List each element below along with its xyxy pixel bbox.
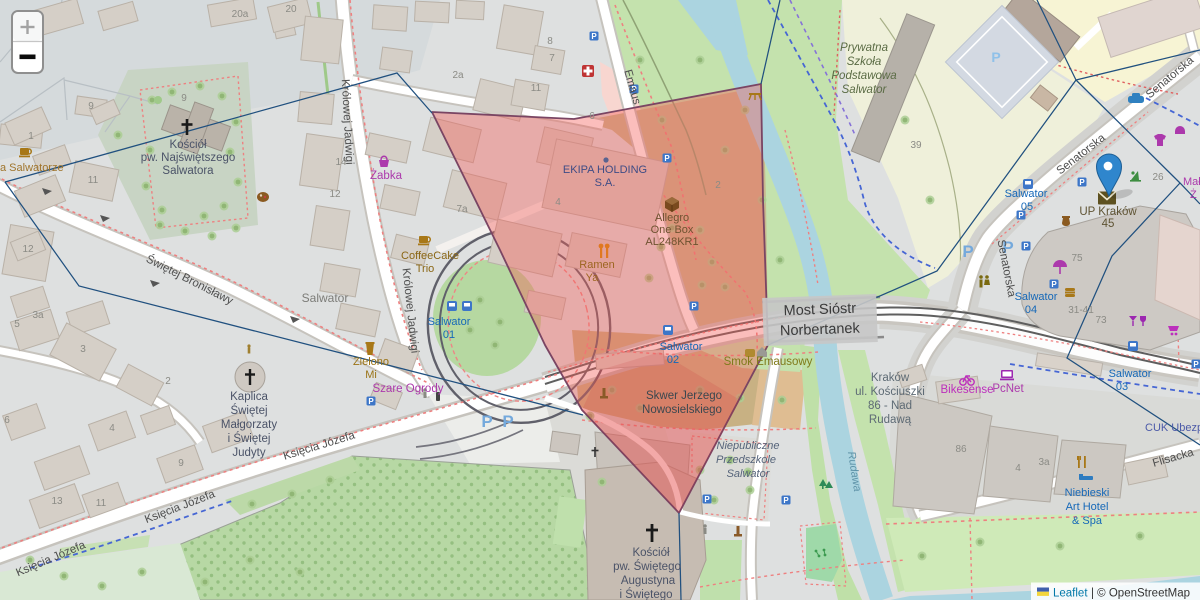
svg-text:Żabka: Żabka <box>370 169 403 182</box>
svg-text:7: 7 <box>549 53 555 64</box>
svg-text:Salwator: Salwator <box>1005 188 1048 200</box>
svg-text:P: P <box>502 412 513 431</box>
svg-text:39: 39 <box>910 140 922 151</box>
svg-text:Salwator: Salwator <box>727 468 771 480</box>
svg-text:2a: 2a <box>452 70 464 81</box>
svg-text:02: 02 <box>667 354 679 366</box>
svg-text:Zielono: Zielono <box>353 356 389 368</box>
svg-text:20: 20 <box>285 4 297 15</box>
svg-text:Niebieski: Niebieski <box>1065 487 1110 499</box>
svg-text:P: P <box>783 496 789 505</box>
svg-text:Salwator: Salwator <box>428 316 471 328</box>
svg-text:P: P <box>664 154 670 163</box>
svg-text:a Salwatorze: a Salwatorze <box>0 162 64 174</box>
svg-text:Podstawowa: Podstawowa <box>831 70 896 82</box>
svg-text:EKIPA HOLDING: EKIPA HOLDING <box>563 164 647 176</box>
svg-text:Bikesense: Bikesense <box>940 384 993 396</box>
svg-text:Niepubliczne: Niepubliczne <box>717 440 780 452</box>
svg-text:4: 4 <box>1015 463 1021 474</box>
svg-text:9: 9 <box>181 93 187 104</box>
svg-text:Szare Ogrody: Szare Ogrody <box>373 383 444 395</box>
svg-text:Mi: Mi <box>365 369 377 381</box>
svg-text:6: 6 <box>4 415 10 426</box>
svg-text:5: 5 <box>14 319 20 330</box>
svg-text:ul. Kościuszki: ul. Kościuszki <box>855 386 925 398</box>
svg-text:Mał: Mał <box>1183 176 1200 188</box>
svg-text:4: 4 <box>555 197 561 208</box>
svg-text:Rudawą: Rudawą <box>869 414 912 426</box>
svg-text:73: 73 <box>1095 315 1107 326</box>
svg-text:Kościół: Kościół <box>632 547 670 559</box>
svg-text:Kraków: Kraków <box>871 372 910 384</box>
svg-text:UP Kraków: UP Kraków <box>1079 206 1137 218</box>
svg-text:9: 9 <box>88 101 94 112</box>
svg-text:03: 03 <box>1116 381 1128 393</box>
svg-text:20a: 20a <box>232 9 249 20</box>
svg-text:| © OpenStreetMap: | © OpenStreetMap <box>1091 588 1190 600</box>
svg-text:Świętej: Świętej <box>230 404 267 417</box>
svg-text:Salwator: Salwator <box>660 341 703 353</box>
svg-text:& Spa: & Spa <box>1072 515 1103 527</box>
svg-text:8: 8 <box>547 36 553 47</box>
svg-text:3a: 3a <box>32 310 44 321</box>
svg-text:Ż: Ż <box>1190 188 1197 201</box>
svg-text:S.A.: S.A. <box>595 177 616 189</box>
svg-text:CoffeeCake: CoffeeCake <box>401 250 459 262</box>
svg-text:P: P <box>368 397 374 406</box>
svg-text:Judyty: Judyty <box>232 447 265 459</box>
svg-text:P: P <box>1079 178 1085 187</box>
svg-text:Trio: Trio <box>416 263 435 275</box>
svg-text:Skwer Jerzego: Skwer Jerzego <box>646 390 722 402</box>
svg-text:Salwator: Salwator <box>302 291 349 305</box>
svg-text:Norbertanek: Norbertanek <box>780 321 861 340</box>
svg-text:14: 14 <box>335 157 347 168</box>
svg-text:Augustyna: Augustyna <box>621 575 676 587</box>
svg-text:Ya: Ya <box>586 272 600 284</box>
svg-text:Salwator: Salwator <box>842 84 888 96</box>
svg-text:P: P <box>1193 360 1199 369</box>
svg-text:i Świętego: i Świętego <box>619 588 672 600</box>
svg-text:3: 3 <box>80 344 86 355</box>
svg-text:Most Sióstr: Most Sióstr <box>783 301 856 320</box>
svg-text:31-41: 31-41 <box>1068 305 1094 316</box>
svg-text:P: P <box>1023 242 1029 251</box>
svg-text:AL248KR1: AL248KR1 <box>645 236 698 248</box>
svg-text:Art Hotel: Art Hotel <box>1066 501 1109 513</box>
svg-text:P: P <box>591 32 597 41</box>
svg-text:i Świętej: i Świętej <box>228 432 271 445</box>
svg-text:Prywatna: Prywatna <box>840 42 888 54</box>
svg-text:CUK Ubezpi: CUK Ubezpi <box>1145 422 1200 434</box>
svg-text:6: 6 <box>589 111 595 122</box>
svg-text:3a: 3a <box>1038 457 1050 468</box>
svg-text:7a: 7a <box>456 204 468 215</box>
svg-text:12: 12 <box>329 189 341 200</box>
svg-text:11: 11 <box>88 175 99 186</box>
svg-text:P: P <box>962 242 973 261</box>
svg-text:1: 1 <box>28 131 34 142</box>
svg-text:P: P <box>691 302 697 311</box>
svg-text:Salwatora: Salwatora <box>162 165 214 177</box>
svg-text:05: 05 <box>1021 201 1033 213</box>
svg-text:2: 2 <box>715 180 721 191</box>
svg-text:Smok Emausowy: Smok Emausowy <box>724 356 813 368</box>
svg-text:Kaplica: Kaplica <box>230 391 268 403</box>
svg-text:P: P <box>991 49 1000 65</box>
svg-text:One Box: One Box <box>651 224 694 236</box>
svg-text:Przedszkole: Przedszkole <box>716 454 776 466</box>
svg-text:13: 13 <box>51 496 63 507</box>
svg-text:Allegro: Allegro <box>655 212 689 224</box>
svg-text:Nowosielskiego: Nowosielskiego <box>642 404 722 416</box>
svg-text:Leaflet: Leaflet <box>1053 588 1088 600</box>
svg-text:Ramen: Ramen <box>579 259 614 271</box>
svg-text:86 - Nad: 86 - Nad <box>868 400 912 412</box>
svg-text:P: P <box>1051 280 1057 289</box>
svg-text:pw. Świętego: pw. Świętego <box>613 560 681 573</box>
svg-text:Salwator: Salwator <box>1109 368 1152 380</box>
svg-text:Małgorzaty: Małgorzaty <box>221 419 277 431</box>
svg-text:04: 04 <box>1025 304 1037 316</box>
svg-text:pw. Najświętszego: pw. Najświętszego <box>141 152 236 164</box>
svg-text:01: 01 <box>443 329 455 341</box>
svg-text:Szkoła: Szkoła <box>847 56 882 68</box>
svg-text:4: 4 <box>109 423 115 434</box>
svg-text:PcNet: PcNet <box>992 383 1024 395</box>
svg-text:75: 75 <box>1071 253 1083 264</box>
svg-text:Kościół: Kościół <box>169 139 207 151</box>
svg-text:45: 45 <box>1102 218 1115 230</box>
svg-text:9: 9 <box>178 458 184 469</box>
svg-text:11: 11 <box>531 83 542 94</box>
svg-text:Salwator: Salwator <box>1015 291 1058 303</box>
svg-text:P: P <box>704 495 710 504</box>
svg-text:26: 26 <box>1152 172 1164 183</box>
svg-text:P: P <box>481 412 492 431</box>
svg-text:11: 11 <box>96 498 107 509</box>
svg-text:2: 2 <box>165 376 171 387</box>
svg-text:12: 12 <box>22 244 34 255</box>
svg-text:86: 86 <box>955 444 967 455</box>
